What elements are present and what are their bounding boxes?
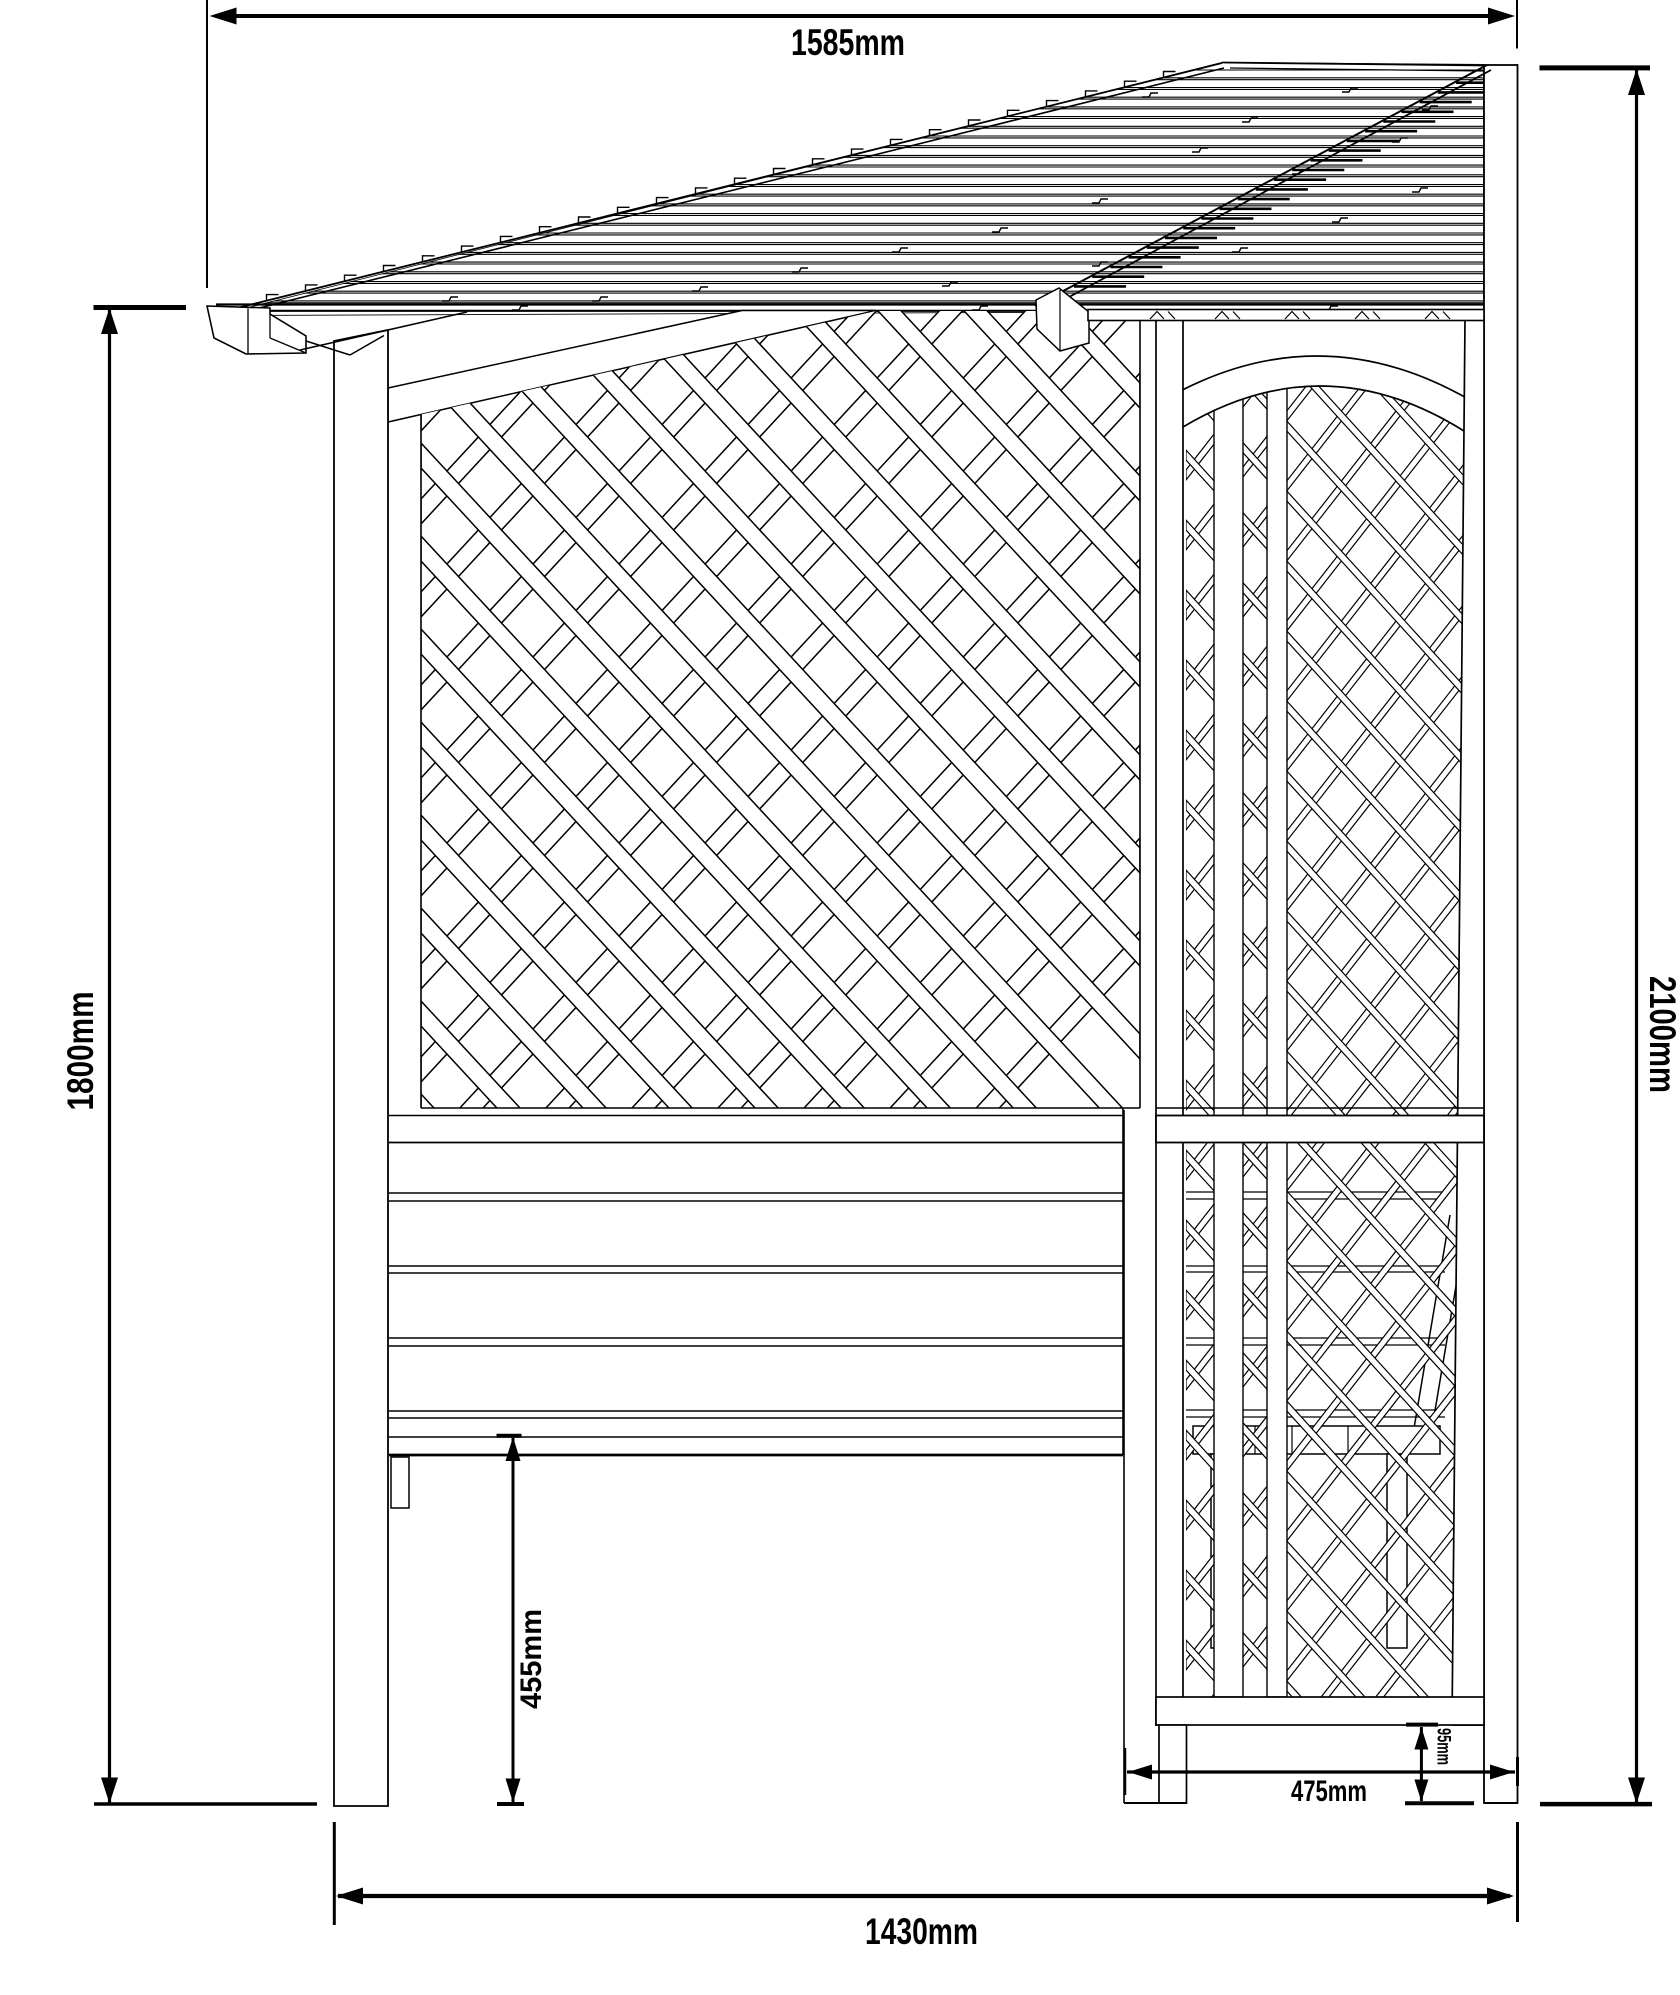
svg-text:475mm: 475mm	[1291, 1775, 1367, 1808]
svg-text:455mm: 455mm	[515, 1609, 548, 1709]
svg-text:1585mm: 1585mm	[791, 22, 905, 63]
svg-text:2100mm: 2100mm	[1642, 976, 1680, 1093]
svg-text:1800mm: 1800mm	[60, 992, 101, 1111]
svg-text:95mm: 95mm	[1433, 1728, 1454, 1765]
svg-text:1430mm: 1430mm	[865, 1911, 978, 1952]
